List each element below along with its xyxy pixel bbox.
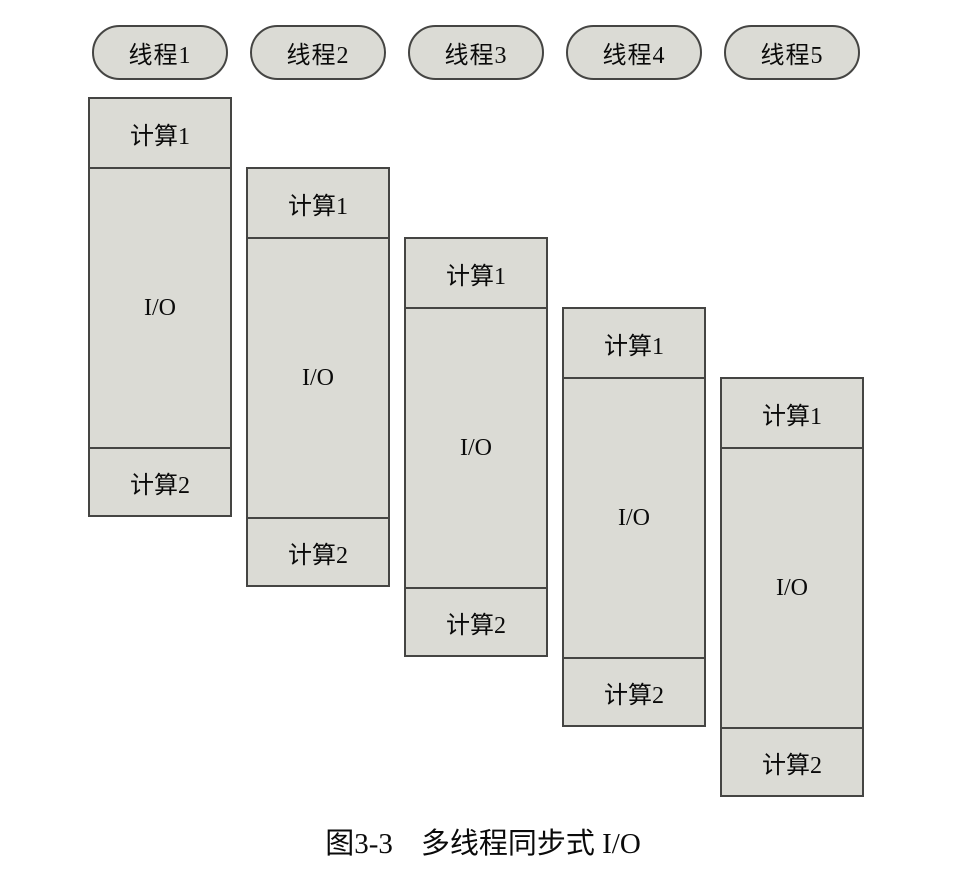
figure-caption-title: 多线程同步式 I/O [421,828,641,860]
segment-compute2: 计算2 [248,517,388,585]
thread-timeline-bar: 计算1I/O计算2 [88,97,232,517]
segment-label: 计算1 [604,326,664,361]
figure-caption: 图3-3多线程同步式 I/O [0,820,966,862]
segment-io: I/O [722,447,862,727]
segment-label: 计算2 [762,745,822,780]
segment-compute2: 计算2 [90,447,230,515]
segment-compute2: 计算2 [406,587,546,655]
thread-timeline-bar: 计算1I/O计算2 [404,237,548,657]
thread-pill: 线程2 [250,25,386,80]
segment-compute1: 计算1 [406,239,546,307]
thread-timeline-bar: 计算1I/O计算2 [562,307,706,727]
thread-label: 线程1 [129,35,192,70]
segment-label: 计算1 [446,256,506,291]
segment-label: 计算1 [288,186,348,221]
segment-compute1: 计算1 [722,379,862,447]
segment-label: 计算2 [288,535,348,570]
segment-compute1: 计算1 [564,309,704,377]
thread-pill: 线程1 [92,25,228,80]
thread-pill: 线程4 [566,25,702,80]
thread-pill: 线程3 [408,25,544,80]
segment-label: I/O [144,295,176,322]
thread-label: 线程5 [761,35,824,70]
segment-label: 计算1 [762,396,822,431]
segment-label: 计算2 [604,675,664,710]
segment-label: 计算1 [130,116,190,151]
segment-label: 计算2 [130,465,190,500]
thread-timeline-bar: 计算1I/O计算2 [246,167,390,587]
segment-label: 计算2 [446,605,506,640]
segment-label: I/O [460,435,492,462]
segment-label: I/O [776,575,808,602]
segment-label: I/O [302,365,334,392]
figure-caption-number: 图3-3 [325,828,393,860]
segment-compute2: 计算2 [564,657,704,725]
thread-label: 线程3 [445,35,508,70]
segment-compute1: 计算1 [90,99,230,167]
segment-label: I/O [618,505,650,532]
segment-compute1: 计算1 [248,169,388,237]
thread-label: 线程2 [287,35,350,70]
thread-pill: 线程5 [724,25,860,80]
thread-timeline-bar: 计算1I/O计算2 [720,377,864,797]
segment-io: I/O [406,307,546,587]
segment-io: I/O [90,167,230,447]
segment-io: I/O [564,377,704,657]
thread-label: 线程4 [603,35,666,70]
segment-io: I/O [248,237,388,517]
segment-compute2: 计算2 [722,727,862,795]
multithread-sync-io-diagram: 线程1计算1I/O计算2线程2计算1I/O计算2线程3计算1I/O计算2线程4计… [0,0,966,882]
